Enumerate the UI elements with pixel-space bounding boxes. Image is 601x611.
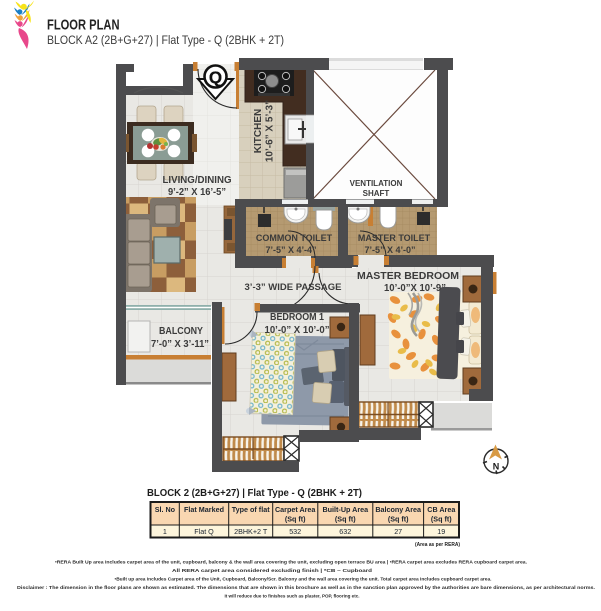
svg-text:Flat Marked: Flat Marked (184, 505, 224, 514)
svg-text:27: 27 (394, 527, 402, 536)
svg-text:BEDROOM 1: BEDROOM 1 (270, 311, 324, 323)
svg-text:2BHK+2 T: 2BHK+2 T (234, 527, 268, 536)
svg-text:Built-Up Area: Built-Up Area (322, 505, 369, 514)
svg-text:3’-3” WIDE PASSAGE: 3’-3” WIDE PASSAGE (245, 282, 342, 293)
svg-text:•Built up area includes Carpet: •Built up area includes Carpet area of t… (115, 577, 492, 582)
svg-text:7’-5” X 4’-4”: 7’-5” X 4’-4” (265, 245, 316, 255)
svg-text:Carpet Area: Carpet Area (275, 505, 316, 514)
svg-text:All RERA carpet area considere: All RERA carpet area considered excludin… (172, 568, 372, 573)
svg-text:Disclaimer : The dimension in: Disclaimer : The dimension in the floor … (17, 585, 595, 590)
svg-text:LIVING/DINING: LIVING/DINING (163, 174, 232, 186)
svg-text:KITCHEN: KITCHEN (253, 109, 264, 153)
svg-text:FLOOR PLAN: FLOOR PLAN (47, 17, 120, 34)
svg-text:N: N (493, 462, 500, 472)
svg-text:BLOCK A2 (2B+G+27) | Flat Type: BLOCK A2 (2B+G+27) | Flat Type - Q (2BHK… (47, 33, 284, 47)
svg-text:7’-0” X 3’-11”: 7’-0” X 3’-11” (151, 339, 209, 350)
svg-text:(Sq ft): (Sq ft) (388, 515, 409, 524)
svg-text:632: 632 (339, 527, 351, 536)
svg-text:BALCONY: BALCONY (159, 326, 203, 337)
svg-text:(Sq ft): (Sq ft) (285, 515, 306, 524)
svg-text:Balcony Area: Balcony Area (375, 505, 422, 514)
svg-text:10’-0”X 10’-9”: 10’-0”X 10’-9” (384, 282, 446, 294)
svg-text:9’-2” X 16’-5”: 9’-2” X 16’-5” (168, 186, 226, 198)
svg-text:MASTER TOILET: MASTER TOILET (358, 233, 431, 243)
svg-text:VENTILATION: VENTILATION (350, 179, 403, 188)
svg-text:CB Area: CB Area (427, 505, 456, 514)
svg-text:532: 532 (289, 527, 301, 536)
svg-text:BLOCK 2 (2B+G+27) | Flat Type: BLOCK 2 (2B+G+27) | Flat Type - Q (2BHK … (147, 488, 362, 499)
svg-text:(Sq ft): (Sq ft) (431, 515, 452, 524)
svg-text:SHAFT: SHAFT (363, 189, 390, 198)
svg-text:7’-5” X 4’-0”: 7’-5” X 4’-0” (364, 245, 415, 255)
svg-text:Type of flat: Type of flat (232, 505, 270, 514)
svg-text:It will reduce due to finishes: It will reduce due to finishes such as p… (225, 594, 360, 599)
svg-text:10’-0” X 10’-0”: 10’-0” X 10’-0” (265, 324, 330, 336)
svg-text:(Area as per RERA): (Area as per RERA) (415, 542, 460, 548)
svg-text:COMMON TOILET: COMMON TOILET (256, 233, 333, 243)
svg-text:1: 1 (163, 527, 167, 536)
svg-text:•RERA Built Up area includes c: •RERA Built Up area includes carpet area… (55, 560, 527, 565)
svg-text:(Sq ft): (Sq ft) (335, 515, 356, 524)
svg-text:Flat Q: Flat Q (194, 527, 214, 536)
svg-text:Q: Q (209, 68, 222, 87)
svg-text:10’-6” X 5’-3”: 10’-6” X 5’-3” (265, 100, 276, 162)
svg-text:19: 19 (437, 527, 445, 536)
svg-text:Sl. No: Sl. No (155, 505, 176, 514)
svg-text:MASTER BEDROOM: MASTER BEDROOM (357, 270, 459, 282)
